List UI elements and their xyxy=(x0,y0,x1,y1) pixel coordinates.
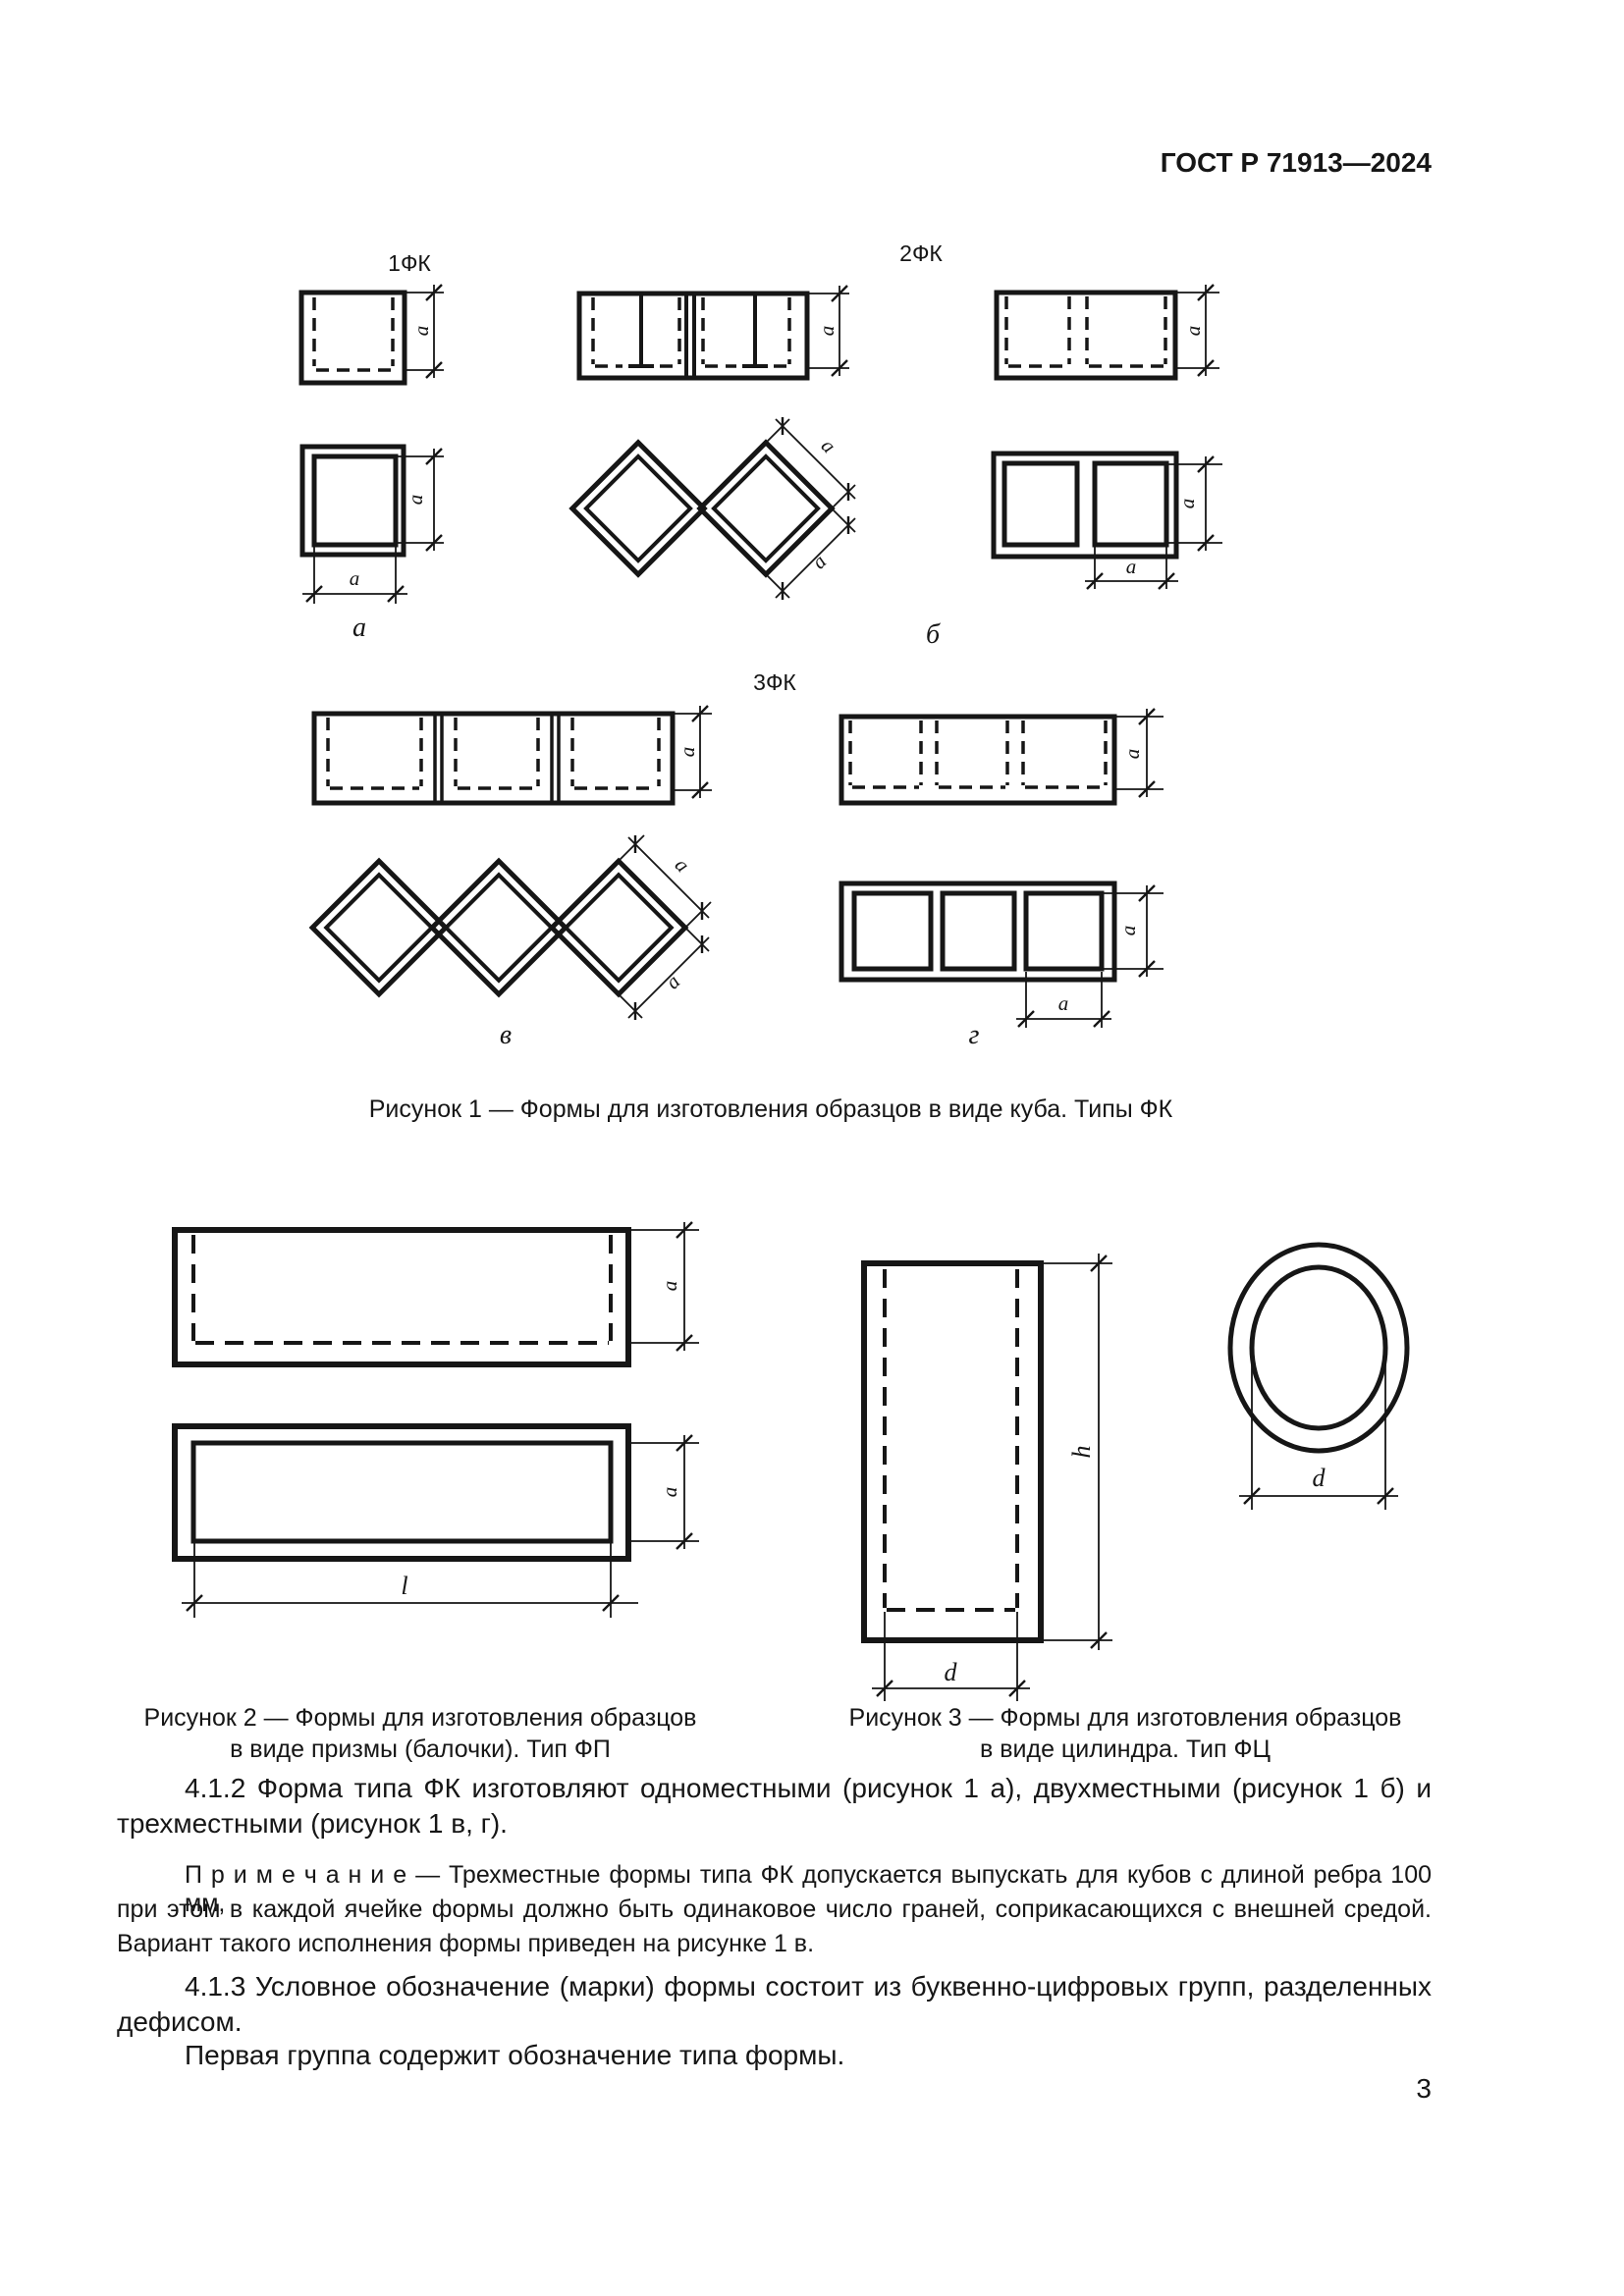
mold-fp-top-view: a xyxy=(175,1222,699,1364)
note-line2: при этом в каждой ячейке формы должно бы… xyxy=(117,1896,1432,1924)
group-label-1fk: 1ФК xyxy=(388,250,431,276)
mold-3fk-top-view: a xyxy=(841,709,1164,803)
dimension-label-a: a xyxy=(807,550,831,573)
dimension-label-a: a xyxy=(350,566,360,590)
group-label-3fk: 3ФК xyxy=(753,669,796,695)
figure1-part-label-b: б xyxy=(926,619,941,650)
mold-1fk-bottom-view: a a а xyxy=(302,447,444,643)
mold-3fk-diamond-bottom-view: a a в xyxy=(312,835,711,1050)
dimension-label-a: a xyxy=(671,853,694,877)
mold-fc-side-view: h d xyxy=(864,1254,1112,1701)
paragraph-413-line1: 4.1.3 Условное обозначение (марки) формы… xyxy=(117,1971,1432,2002)
figure2-caption-line2: в виде призмы (балочки). Тип ФП xyxy=(126,1735,715,1764)
dimension-label-a: a xyxy=(815,326,839,337)
dimension-label-a: a xyxy=(1175,499,1199,509)
group-label-2fk: 2ФК xyxy=(899,240,943,266)
figure1-caption: Рисунок 1 — Формы для изготовления образ… xyxy=(295,1095,1247,1124)
dimension-label-a: a xyxy=(658,1281,681,1292)
mold-fp-bottom-view: a l xyxy=(175,1426,699,1618)
dimension-label-a: a xyxy=(1120,749,1144,760)
dimension-label-d: d xyxy=(1313,1464,1326,1492)
dimension-label-a: a xyxy=(676,747,699,758)
mold-3fk-bottom-view: a a г xyxy=(841,883,1164,1050)
dimension-label-d: d xyxy=(945,1658,958,1686)
dimension-label-a: a xyxy=(1181,326,1205,337)
page-number: 3 xyxy=(117,2073,1432,2105)
mold-2fk-diamond-bottom-view: a a б xyxy=(572,417,941,650)
paragraph-413-line3: Первая группа содержит обозначение типа … xyxy=(117,2040,1432,2071)
paragraph-412-line2: трехместными (рисунок 1 в, г). xyxy=(117,1808,1432,1840)
dimension-label-a: a xyxy=(817,434,840,457)
dimension-label-a: a xyxy=(1116,926,1140,936)
mold-3fk-diagonal-top-view: a xyxy=(314,706,712,803)
mold-2fk-bottom-view: a a xyxy=(994,454,1222,589)
dimension-label-a: a xyxy=(404,495,427,506)
figure3-caption-line1: Рисунок 3 — Формы для изготовления образ… xyxy=(831,1704,1420,1733)
paragraph-412-line1: 4.1.2 Форма типа ФК изготовляют одномест… xyxy=(117,1773,1432,1804)
figure3-caption-line2: в виде цилиндра. Тип ФЦ xyxy=(831,1735,1420,1764)
mold-2fk-diagonal-top-view: a xyxy=(579,286,849,378)
mold-2fk-top-view: a xyxy=(997,285,1219,378)
dimension-label-a: a xyxy=(658,1487,681,1498)
document-page: ГОСТ Р 71913—2024 1ФК 2ФК 3ФК a a xyxy=(0,0,1624,2296)
mold-fc-plan-view: d xyxy=(1230,1245,1407,1510)
dimension-label-a: a xyxy=(409,326,433,337)
figure2-caption-line1: Рисунок 2 — Формы для изготовления образ… xyxy=(126,1704,715,1733)
figure1-part-label-a: а xyxy=(352,613,366,643)
dimension-label-a: a xyxy=(1058,991,1069,1015)
dimension-label-h: h xyxy=(1067,1446,1096,1459)
figure1-part-label-v: в xyxy=(500,1020,512,1050)
mold-1fk-top-view: a xyxy=(301,285,444,383)
figure1-part-label-g: г xyxy=(969,1020,980,1050)
note-line3: Вариант такого исполнения формы приведен… xyxy=(117,1930,1432,1958)
paragraph-413-line2: дефисом. xyxy=(117,2006,1432,2038)
dimension-label-a: a xyxy=(1126,555,1137,578)
dimension-label-l: l xyxy=(401,1572,407,1600)
